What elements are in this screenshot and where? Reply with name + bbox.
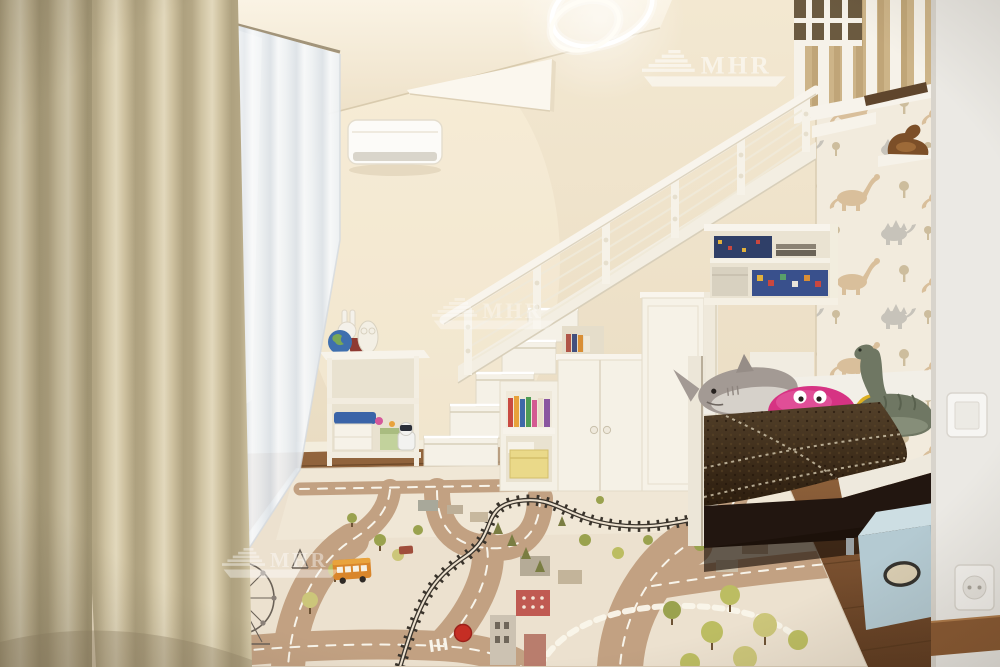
vignette — [0, 0, 1000, 667]
children-room-photo: ПАРК — [0, 0, 1000, 667]
